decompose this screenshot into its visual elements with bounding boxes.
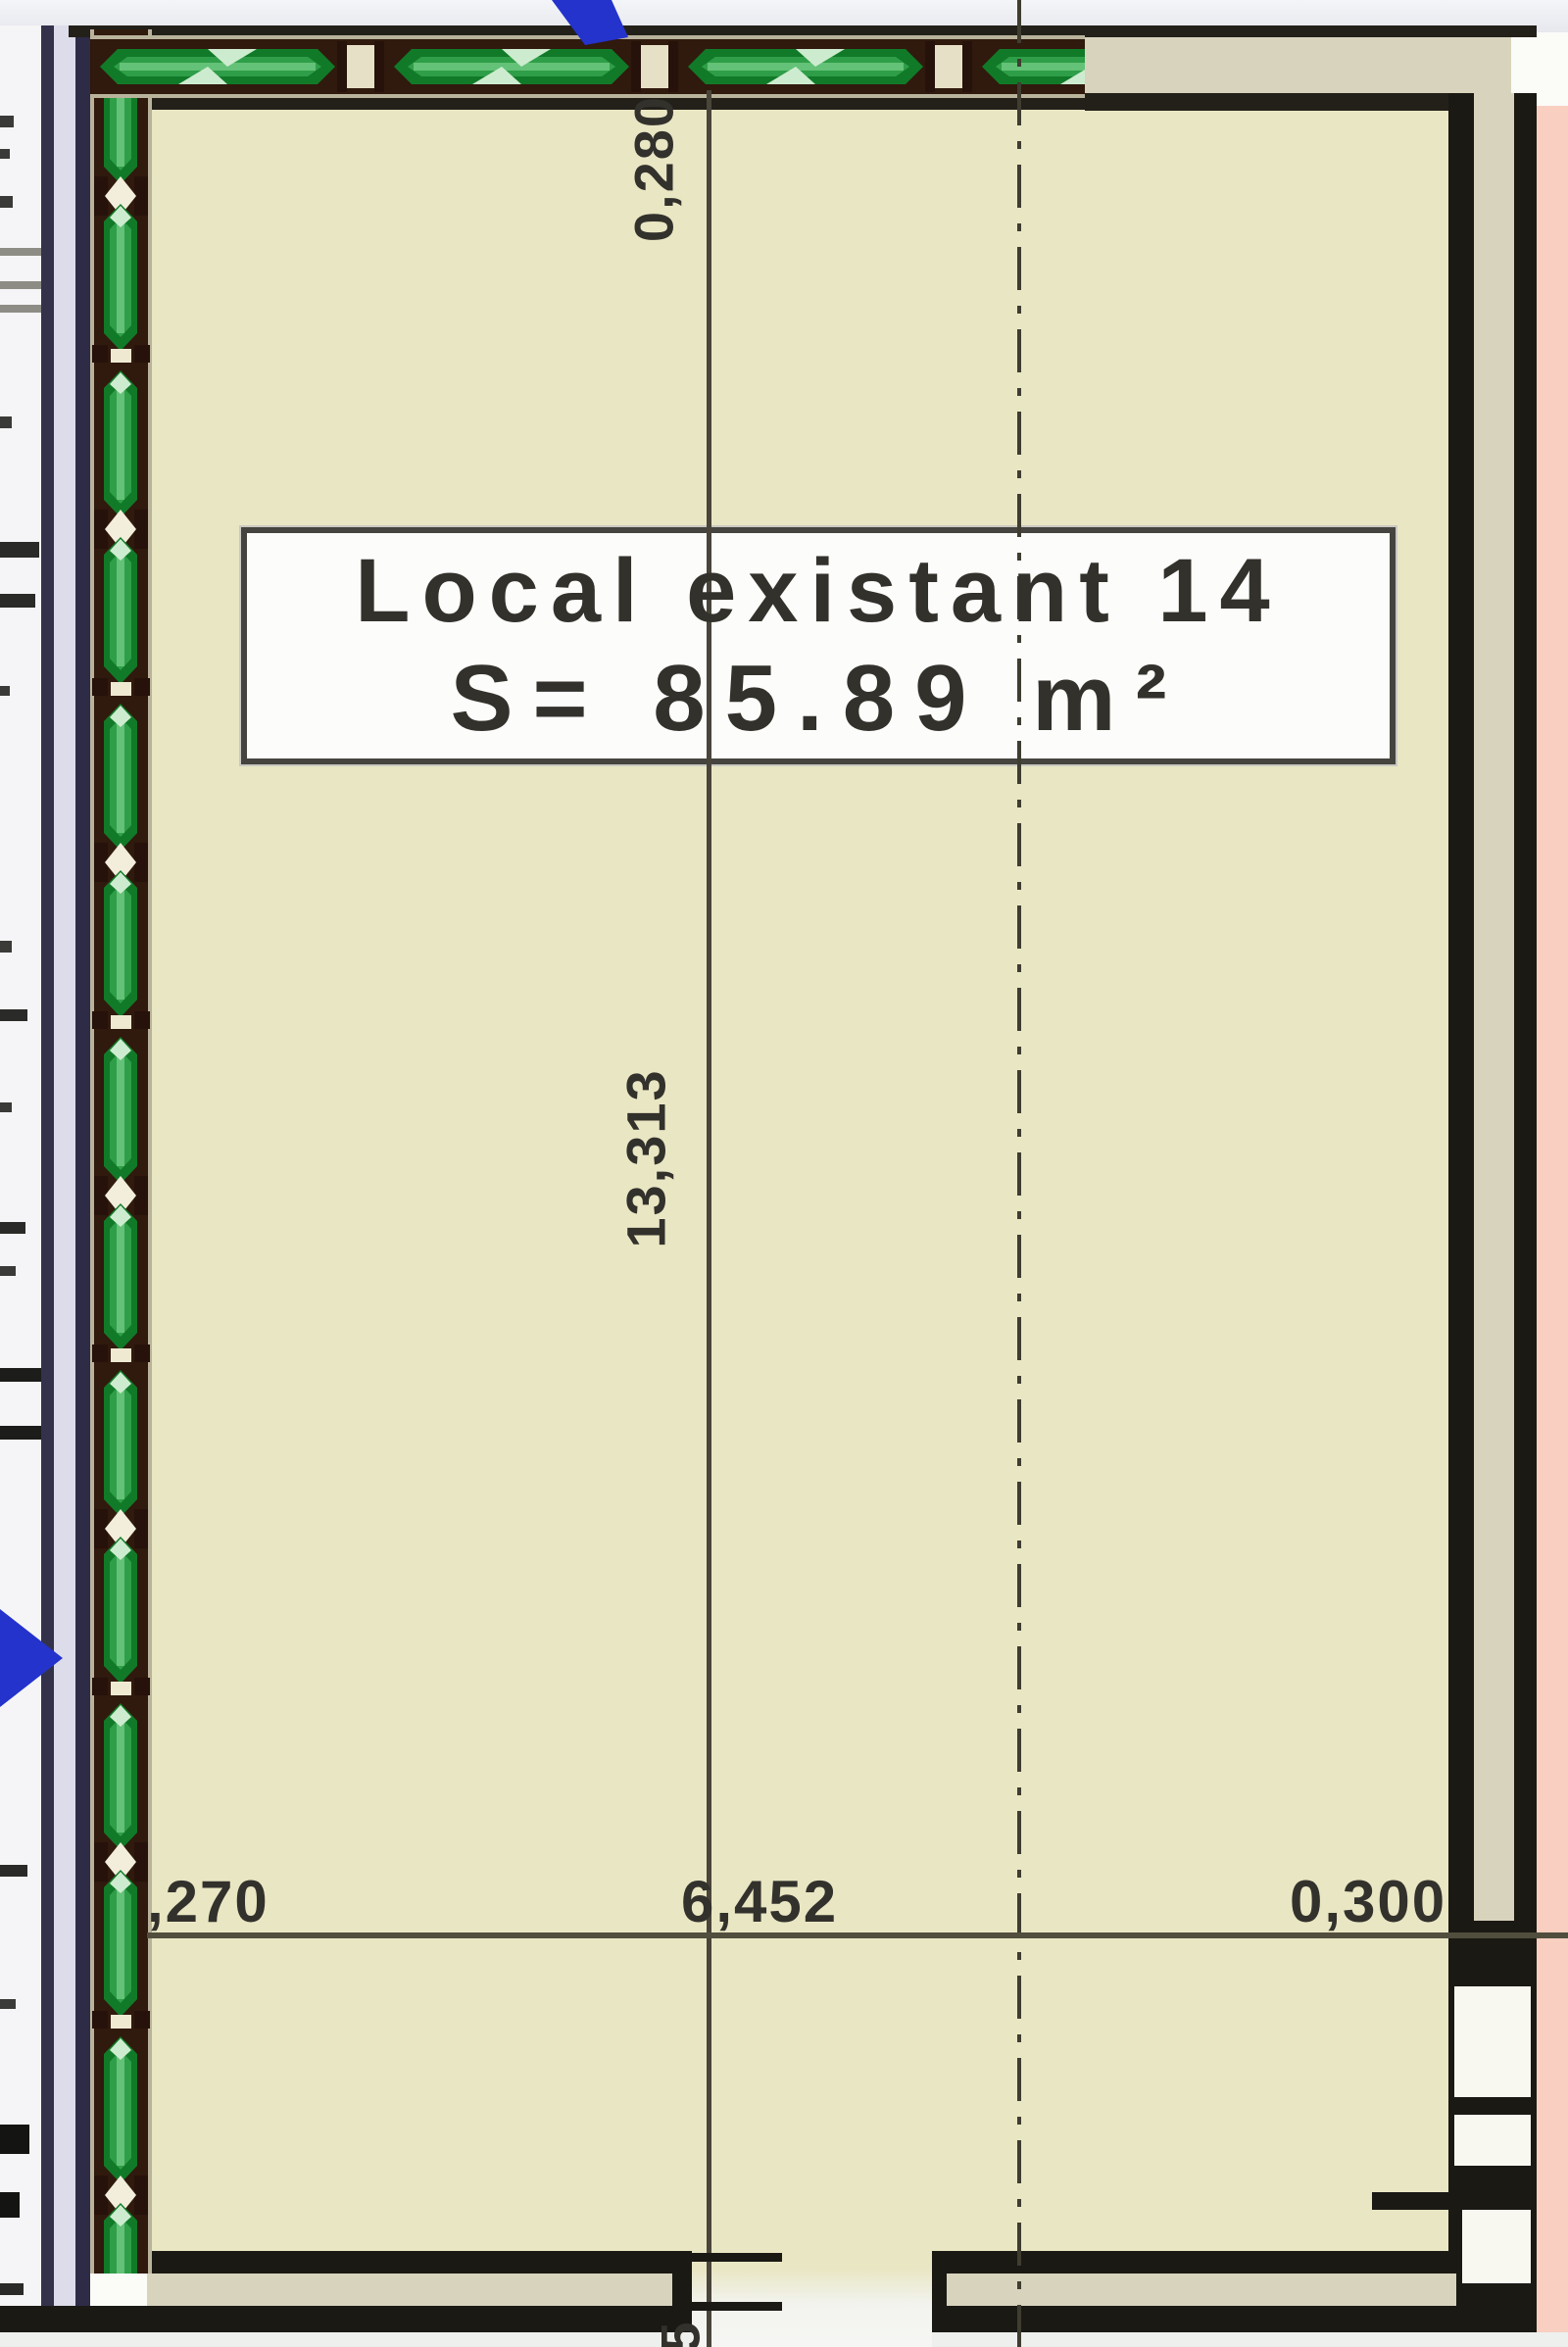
room-name: Local existant 14 — [355, 538, 1281, 644]
top-wall-tan-core — [1085, 37, 1511, 93]
vertical-axis-dashdot-line — [1017, 0, 1021, 2347]
room-area: S= 85.89 m² — [451, 644, 1187, 754]
left-wall-lavender-strip — [54, 25, 75, 2320]
right-wall-inner-line — [1448, 93, 1474, 1921]
right-wall-stub — [1372, 2192, 1448, 2210]
bottom-wall-tan-core-left — [147, 2274, 676, 2306]
bottom-wall-tan-core-right — [947, 2274, 1456, 2306]
margin-mark — [0, 416, 12, 428]
top-wall-greenery-band — [90, 35, 1085, 98]
right-wall-solid-block-lower — [1448, 2166, 1537, 2210]
margin-mark — [0, 686, 10, 696]
margin-mark — [0, 542, 39, 558]
margin-mark — [0, 2283, 24, 2295]
margin-mark — [0, 149, 10, 159]
margin-mark — [0, 594, 35, 608]
dimension-bottom-edge-partial: 5 — [649, 2320, 712, 2347]
margin-mark — [0, 2125, 29, 2154]
dimension-bottom-center: 6,452 — [681, 1868, 838, 1935]
threshold-tick-upper — [679, 2253, 782, 2262]
margin-mark — [0, 116, 14, 127]
vertical-dimension-line — [707, 90, 711, 2347]
dimension-bottom-right: 0,300 — [1290, 1868, 1446, 1935]
bottom-wall-outer-line-right — [932, 2306, 1537, 2332]
right-wall-opening-divider — [1448, 2097, 1537, 2115]
margin-mark — [0, 1266, 16, 1276]
dimension-bottom-left: ,270 — [147, 1868, 269, 1935]
margin-mark — [0, 1102, 12, 1112]
margin-mark — [0, 305, 43, 313]
left-wall-greenery-band — [90, 29, 152, 2274]
margin-mark — [0, 281, 43, 289]
margin-mark — [0, 2192, 20, 2218]
right-wall-door-opening-1 — [1448, 1986, 1537, 2166]
right-wall-solid-block-upper — [1448, 1921, 1537, 1986]
margin-mark — [0, 196, 13, 208]
threshold-tick-lower — [679, 2302, 782, 2311]
right-wall-outer-line — [1514, 93, 1537, 1921]
top-wall-inner-line — [90, 96, 1085, 110]
left-wall-outer-line — [41, 25, 54, 2320]
floor-plan-canvas: Local existant 14 S= 85.89 m² ,270 6,452… — [0, 0, 1568, 2347]
margin-mark — [0, 1865, 27, 1877]
dimension-top-offset: 0,280 — [622, 95, 686, 242]
bottom-door-opening — [692, 2251, 932, 2347]
outside-area-left — [0, 25, 41, 2332]
bottom-wall-inner-line-right — [932, 2251, 1456, 2274]
margin-mark — [0, 1009, 27, 1021]
margin-mark — [0, 1222, 25, 1234]
bottom-wall-inner-line-left — [137, 2251, 686, 2274]
margin-mark — [0, 248, 43, 256]
margin-mark — [0, 1999, 16, 2009]
left-wall-navy-line — [75, 25, 90, 2332]
bottom-wall-outer-line-left — [0, 2306, 686, 2332]
outside-area-right-pink — [1537, 106, 1568, 2347]
dimension-interior-height: 13,313 — [614, 1068, 678, 1247]
room-label: Local existant 14 S= 85.89 m² — [241, 527, 1396, 764]
right-wall-door-opening-2 — [1462, 2210, 1537, 2283]
right-wall-tan-core — [1474, 93, 1514, 1921]
margin-mark — [0, 941, 12, 953]
